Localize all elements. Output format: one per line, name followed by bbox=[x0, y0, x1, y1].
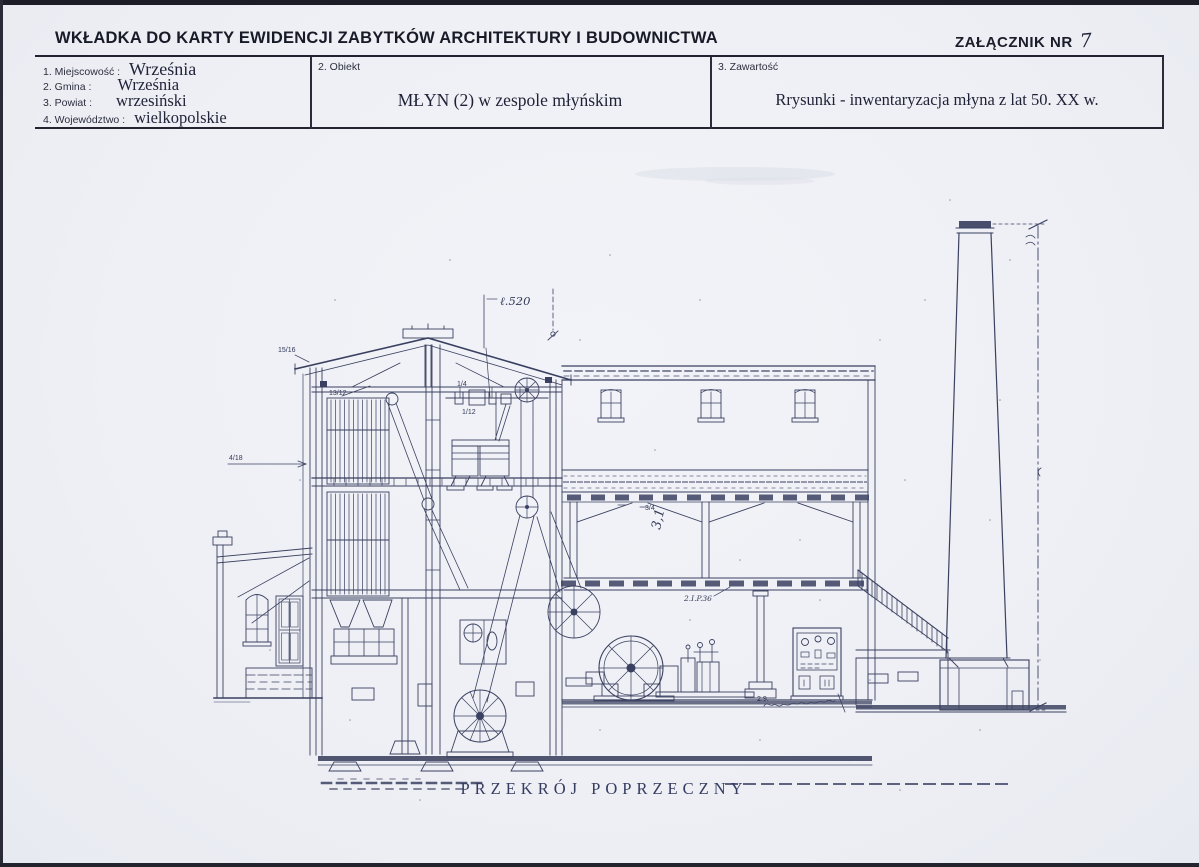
right-gallery bbox=[856, 570, 950, 705]
mill-cross-section-drawing: PRZEKRÓJ POPRZECZNY ℓ.520 3,1 2.I.P.36 2… bbox=[0, 0, 1199, 867]
middle-building bbox=[562, 366, 875, 700]
fraction-label: 1/4 bbox=[457, 381, 467, 388]
ground-lines bbox=[214, 698, 1066, 771]
engine-room bbox=[537, 512, 845, 712]
left-annex bbox=[213, 531, 312, 698]
fraction-label: 4/18 bbox=[229, 455, 243, 462]
scan-edge-bottom bbox=[0, 863, 1199, 867]
mill-machinery bbox=[352, 378, 548, 757]
fraction-label: 1/12 bbox=[462, 409, 476, 416]
chimney bbox=[940, 221, 1029, 710]
beam-mark: 2.I.P.36 bbox=[683, 594, 712, 603]
fraction-label: 13/12 bbox=[329, 390, 347, 397]
dimension-note-handwritten: ℓ.520 bbox=[500, 294, 530, 308]
fraction-label: 15/16 bbox=[278, 347, 296, 354]
main-building bbox=[228, 324, 571, 755]
drawing-caption: PRZEKRÓJ POPRZECZNY bbox=[460, 779, 747, 798]
fraction-label: 3/4 bbox=[645, 505, 655, 512]
scanned-document-page: WKŁADKA DO KARTY EWIDENCJI ZABYTKÓW ARCH… bbox=[0, 0, 1199, 867]
scan-smudge bbox=[635, 167, 835, 185]
engine-note: 2.9. bbox=[757, 696, 769, 703]
